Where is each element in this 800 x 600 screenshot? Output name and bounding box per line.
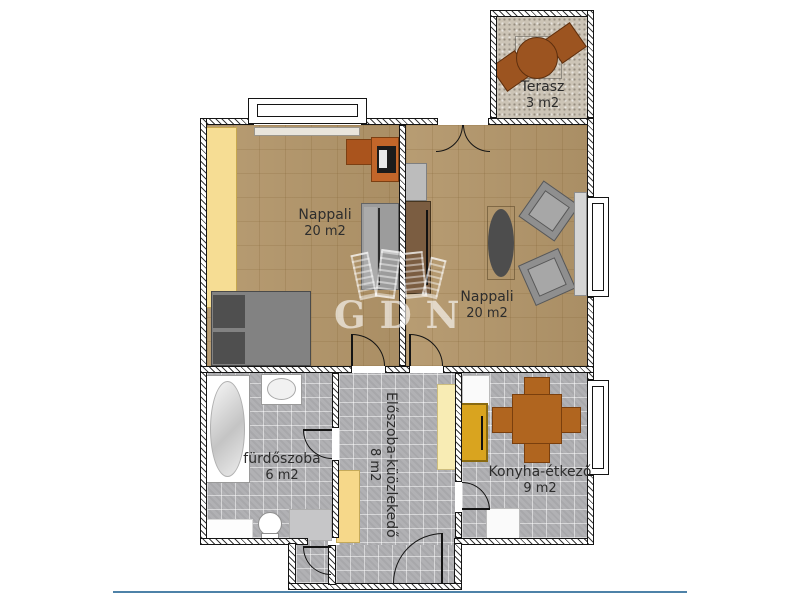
floor-plan: Nappali 20 m2 Nappali 20 m2 Terasz 3 m2 … (0, 0, 800, 600)
wall-hall-kitchen-lower (455, 512, 462, 538)
room-name: Konyha-étkező (465, 463, 615, 481)
dining-chair (492, 407, 513, 433)
room-name: Nappali (265, 206, 385, 224)
cabinet-gray (404, 163, 427, 201)
window-sill (254, 127, 360, 136)
bay-window-kitchen-glazing (592, 386, 604, 469)
sideboard (574, 192, 587, 296)
wall-top-left (200, 118, 254, 125)
room-area: 3 m2 (495, 96, 590, 113)
watermark-logo: GDN (334, 293, 474, 337)
dining-table (512, 394, 562, 444)
wall-horizontal-right (443, 366, 594, 373)
wall-terrace-top (490, 10, 594, 17)
bay-window-top-glazing (257, 104, 358, 117)
entrance-door-leaf (441, 533, 443, 583)
wall-horizontal-left (200, 366, 352, 373)
patio-table (516, 37, 558, 79)
room-name: Előszoba-küözlekedő (382, 385, 400, 545)
room-label-hallway: Előszoba-küözlekedő 8 m2 (365, 385, 400, 545)
fridge-handle (481, 416, 483, 450)
wall-horizontal-stub (385, 366, 410, 373)
kitchen-appliance (486, 508, 520, 540)
wall-vestibule-bottom (288, 583, 462, 590)
living-right-door-leaf (409, 334, 411, 366)
room-label-terrace: Terasz 3 m2 (495, 78, 590, 113)
room-name: fürdőszoba (222, 450, 342, 468)
wardrobe (206, 127, 237, 308)
fridge-cabinet (458, 403, 488, 462)
wall-top-mid (361, 118, 438, 125)
bay-window-living-right-glazing (592, 203, 604, 291)
bathroom-door-leaf (303, 429, 332, 431)
sink-basin (267, 378, 296, 400)
kitchen-door-leaf (462, 508, 490, 510)
shower-pad (289, 509, 332, 541)
room-label-kitchen: Konyha-étkező 9 m2 (465, 463, 615, 498)
living-left-door-leaf (351, 334, 353, 366)
wall-top-right (488, 118, 594, 125)
room-name: Terasz (495, 78, 590, 96)
room-label-living-left: Nappali 20 m2 (265, 206, 385, 241)
wall-kitchen-bottom (454, 538, 594, 545)
wall-right-upper (587, 118, 594, 197)
dining-chair (524, 442, 550, 463)
bed-pillow (213, 295, 245, 328)
dining-chair (560, 407, 581, 433)
room-label-bathroom: fürdőszoba 6 m2 (222, 450, 342, 485)
bed-pillow (213, 332, 245, 364)
hall-cabinet (437, 384, 456, 470)
wall-left (200, 118, 207, 545)
footer-divider-line (113, 591, 687, 593)
printer-detail (379, 150, 387, 168)
closet-door-leaf (303, 546, 331, 548)
room-area: 20 m2 (265, 224, 385, 241)
oval-table (488, 209, 514, 277)
room-area: 6 m2 (222, 468, 342, 485)
wall-bath-hall-upper (332, 373, 339, 428)
wall-hall-kitchen-upper (455, 373, 462, 482)
room-area: 9 m2 (465, 481, 615, 498)
kitchen-appliance (462, 375, 490, 406)
desk-chair (346, 139, 372, 165)
room-area: 8 m2 (365, 385, 382, 545)
